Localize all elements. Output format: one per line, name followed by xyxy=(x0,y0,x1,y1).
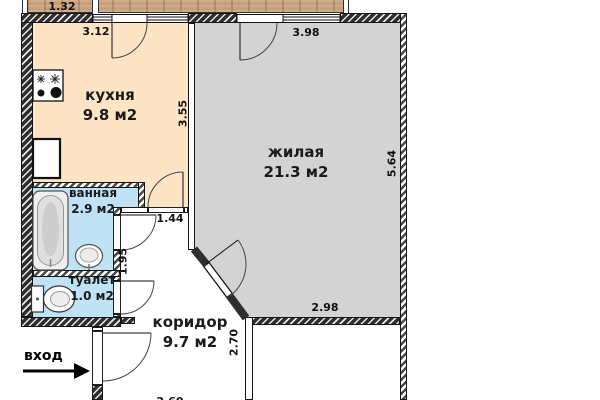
dimension-bathroom-side: 1.95 xyxy=(117,245,130,279)
floor-plan: кухня 9.8 м2 жилая 21.3 м2 ванная 2.9 м2… xyxy=(0,0,600,400)
toilet-area: 1.0 м2 xyxy=(50,289,134,305)
bathroom-area: 2.9 м2 xyxy=(51,202,135,218)
room-label-kitchen: кухня 9.8 м2 xyxy=(55,85,165,126)
entrance-label: вход xyxy=(24,348,63,364)
kitchen-area: 9.8 м2 xyxy=(55,105,165,125)
window-sill-lines xyxy=(93,14,340,23)
dimension-balcony: 1.32 xyxy=(44,0,80,13)
living-balcony-door xyxy=(240,23,277,60)
entrance-arrow-icon xyxy=(23,363,90,379)
dimension-living-side: 5.64 xyxy=(386,147,399,181)
room-label-bathroom: ванная 2.9 м2 xyxy=(51,186,135,217)
living-name: жилая xyxy=(241,142,351,162)
sink-icon xyxy=(76,245,103,271)
dimension-kitchen-side: 3.55 xyxy=(177,97,190,131)
dimension-corridor-top: 1.44 xyxy=(152,212,188,225)
dimension-living-bottom: 2.98 xyxy=(307,301,343,314)
room-label-living: жилая 21.3 м2 xyxy=(241,142,351,183)
living-area: 21.3 м2 xyxy=(241,162,351,182)
bathroom-name: ванная xyxy=(51,186,135,202)
dimension-corridor-side: 2.70 xyxy=(228,326,241,360)
dimension-living-top: 3.98 xyxy=(288,26,324,39)
dimension-bottom-partial: 2.60 xyxy=(152,395,188,400)
dimension-kitchen-top: 3.12 xyxy=(78,25,114,38)
kitchen-door xyxy=(148,172,183,207)
kitchen-counter-icon xyxy=(33,139,60,178)
diagonal-wall xyxy=(194,249,246,318)
kitchen-balcony-door xyxy=(112,23,147,58)
kitchen-name: кухня xyxy=(55,85,165,105)
